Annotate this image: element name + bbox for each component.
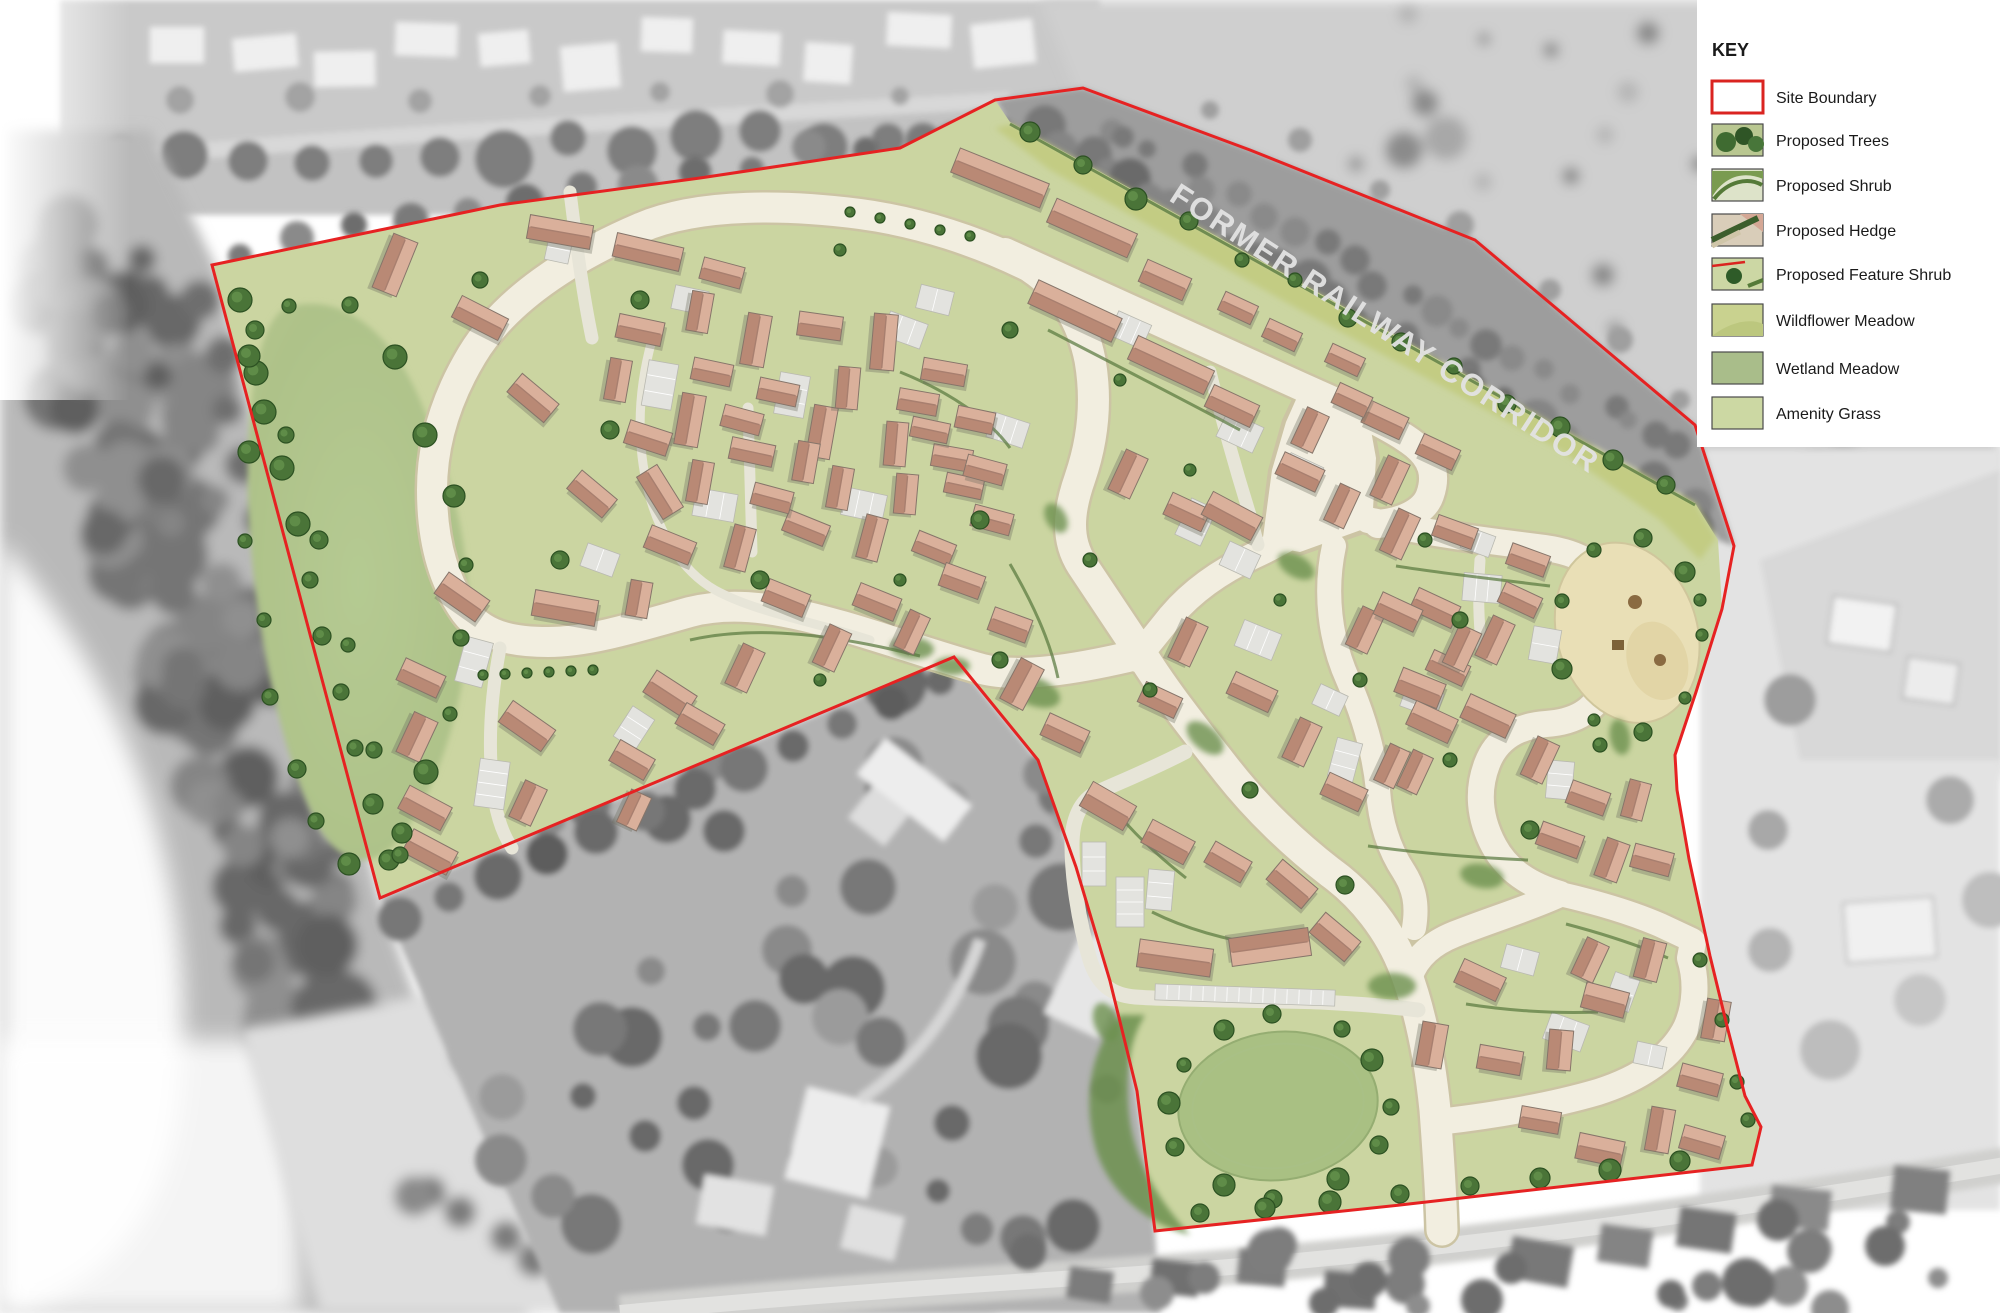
svg-text:Proposed Hedge: Proposed Hedge [1776, 223, 1896, 240]
svg-text:Amenity Grass: Amenity Grass [1776, 406, 1881, 423]
svg-text:KEY: KEY [1712, 40, 1749, 60]
svg-text:Wildflower Meadow: Wildflower Meadow [1776, 313, 1915, 330]
svg-text:Wetland Meadow: Wetland Meadow [1776, 361, 1900, 378]
svg-text:Site Boundary: Site Boundary [1776, 90, 1877, 107]
svg-text:Proposed Feature Shrub: Proposed Feature Shrub [1776, 267, 1951, 284]
svg-text:Proposed Trees: Proposed Trees [1776, 133, 1889, 150]
svg-text:Proposed Shrub: Proposed Shrub [1776, 178, 1892, 195]
